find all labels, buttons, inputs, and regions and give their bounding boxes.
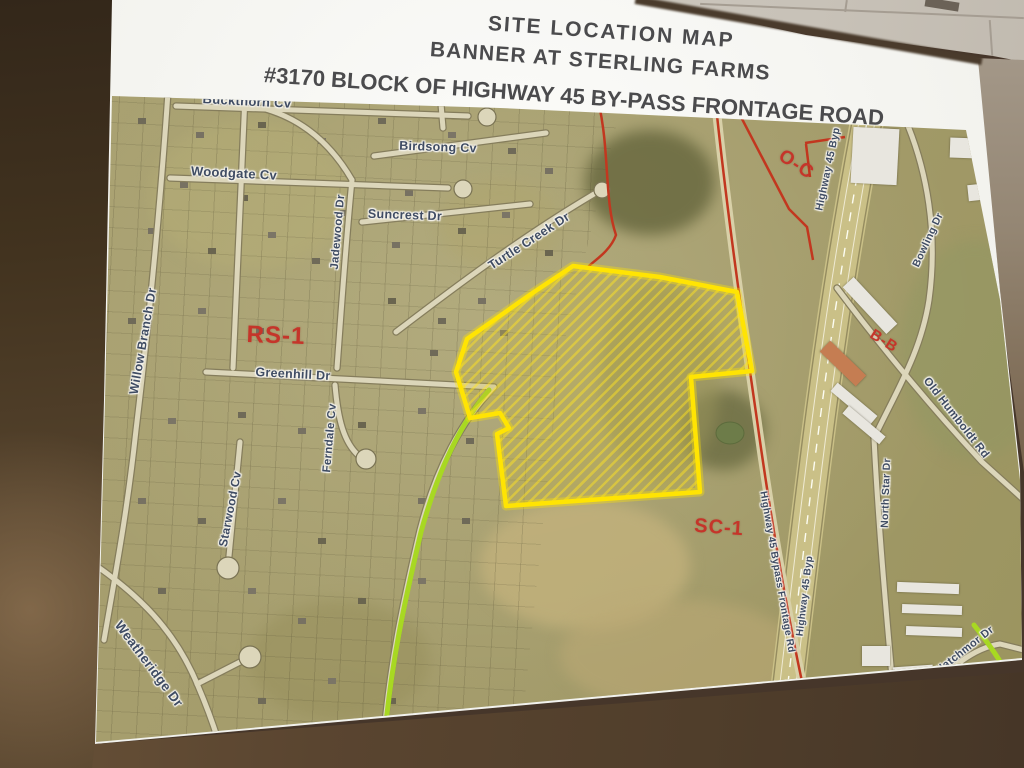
zoning-label-sc-1: SC-1 xyxy=(693,515,744,541)
street-label-suncrest-dr: Suncrest Dr xyxy=(368,207,443,224)
commercial-building xyxy=(950,138,979,159)
commercial-building xyxy=(967,183,993,201)
storage-building-row xyxy=(906,626,962,637)
commercial-building xyxy=(893,665,934,679)
ceiling-joint xyxy=(989,20,994,56)
zoning-label-rs-1: RS-1 xyxy=(246,321,306,351)
storage-building-row xyxy=(897,582,959,594)
ceiling-vent-slot xyxy=(925,0,960,12)
photo-of-projection-screen: SITE LOCATION MAP BANNER AT STERLING FAR… xyxy=(0,0,1024,768)
street-label-birdsong-cv: Birdsong Cv xyxy=(399,139,477,156)
commercial-building xyxy=(851,127,900,185)
street-label-north-star-dr: North Star Dr xyxy=(879,458,893,528)
commercial-building xyxy=(915,110,937,124)
projected-slide: SITE LOCATION MAP BANNER AT STERLING FAR… xyxy=(0,0,1024,768)
commercial-building xyxy=(862,646,890,666)
